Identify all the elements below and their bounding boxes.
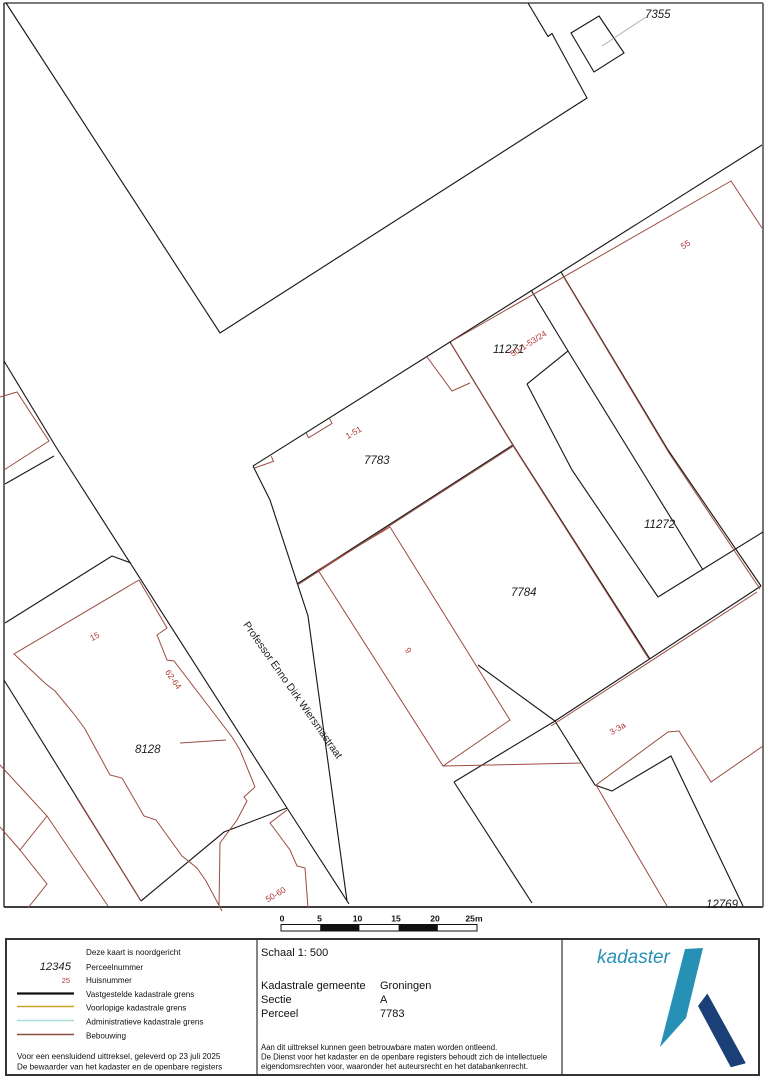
svg-text:25m: 25m [465,914,483,924]
svg-text:A: A [380,994,388,1006]
svg-text:Administratieve kadastrale gre: Administratieve kadastrale grens [86,1018,203,1027]
svg-text:20: 20 [430,914,440,924]
svg-text:7783: 7783 [380,1008,404,1020]
svg-text:Voorlopige kadastrale grens: Voorlopige kadastrale grens [86,1004,186,1013]
svg-text:11272: 11272 [644,519,676,531]
svg-text:Huisnummer: Huisnummer [86,976,132,985]
svg-text:De bewaarder van het kadaster: De bewaarder van het kadaster en de open… [17,1063,222,1072]
svg-text:25: 25 [62,976,70,985]
svg-text:12769: 12769 [706,899,739,911]
svg-text:De Dienst voor het kadaster en: De Dienst voor het kadaster en de openba… [261,1053,547,1062]
svg-text:15: 15 [391,914,401,924]
svg-text:0: 0 [280,914,285,924]
svg-text:kadaster: kadaster [597,947,671,968]
svg-text:8128: 8128 [135,744,161,756]
svg-text:7784: 7784 [511,587,537,599]
svg-text:Groningen: Groningen [380,980,431,992]
svg-text:Perceel: Perceel [261,1008,298,1020]
svg-text:Schaal 1: 500: Schaal 1: 500 [261,947,328,959]
svg-text:Voor een eensluidend uittrekse: Voor een eensluidend uittreksel, gelever… [17,1052,221,1061]
svg-text:Deze kaart is noordgericht: Deze kaart is noordgericht [86,948,181,957]
svg-text:10: 10 [353,914,363,924]
svg-text:Perceelnummer: Perceelnummer [86,963,143,972]
svg-text:Kadastrale gemeente: Kadastrale gemeente [261,980,366,992]
svg-text:12345: 12345 [40,961,72,973]
svg-text:Vastgestelde kadastrale grens: Vastgestelde kadastrale grens [86,990,194,999]
svg-text:Sectie: Sectie [261,994,292,1006]
svg-text:Aan dit uittreksel kunnen geen: Aan dit uittreksel kunnen geen betrouwba… [261,1043,497,1052]
svg-text:Bebouwing: Bebouwing [86,1032,126,1041]
svg-text:5: 5 [317,914,322,924]
svg-text:7355: 7355 [645,9,671,21]
svg-text:7783: 7783 [364,455,390,467]
svg-text:eigendomsrechten voor, waarond: eigendomsrechten voor, waaronder het aut… [261,1062,528,1071]
